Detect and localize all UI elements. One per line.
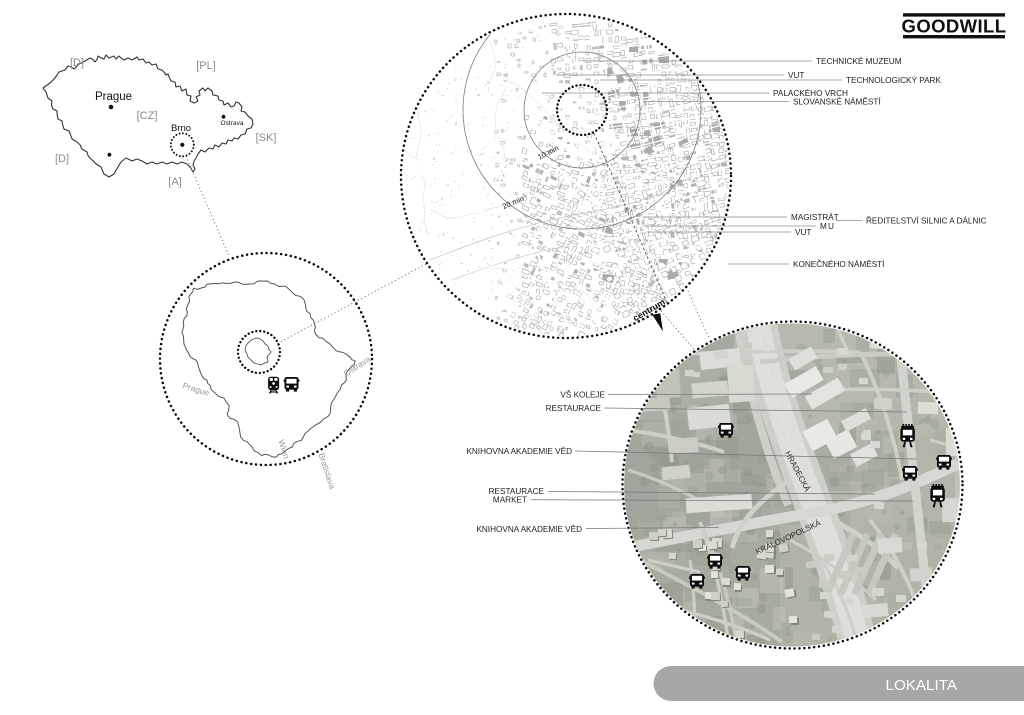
svg-text:[D]: [D] bbox=[70, 57, 84, 69]
svg-text:MAGISTRÁT: MAGISTRÁT bbox=[791, 212, 839, 222]
svg-text:RESTAURACE: RESTAURACE bbox=[546, 404, 602, 413]
svg-text:MU: MU bbox=[820, 222, 835, 231]
svg-text:GOODWILL: GOODWILL bbox=[902, 15, 1007, 36]
svg-text:KNIHOVNA AKADEMIE VĚD: KNIHOVNA AKADEMIE VĚD bbox=[476, 524, 582, 534]
svg-text:TECHNICKÉ MUZEUM: TECHNICKÉ MUZEUM bbox=[816, 56, 902, 66]
svg-text:[A]: [A] bbox=[168, 176, 181, 188]
svg-text:Prague: Prague bbox=[181, 380, 210, 398]
svg-text:TECHNOLOGICKÝ PARK: TECHNOLOGICKÝ PARK bbox=[846, 75, 941, 85]
svg-text:[PL]: [PL] bbox=[196, 60, 216, 72]
svg-text:Wien: Wien bbox=[276, 438, 291, 460]
svg-text:MARKET: MARKET bbox=[493, 496, 527, 505]
svg-text:PALACKÉHO VRCH: PALACKÉHO VRCH bbox=[773, 88, 848, 98]
svg-text:ŘEDITELSTVÍ SILNIC A DÁLNIC: ŘEDITELSTVÍ SILNIC A DÁLNIC bbox=[866, 215, 987, 225]
svg-text:Prague: Prague bbox=[95, 91, 132, 103]
svg-text:SLOVANSKÉ NÁMĚSTÍ: SLOVANSKÉ NÁMĚSTÍ bbox=[793, 96, 881, 106]
svg-text:[SK]: [SK] bbox=[256, 132, 277, 144]
svg-text:[D]: [D] bbox=[55, 153, 69, 165]
svg-text:KNIHOVNA AKADEMIE VĚD: KNIHOVNA AKADEMIE VĚD bbox=[466, 446, 572, 456]
svg-text:Bratislava: Bratislava bbox=[316, 452, 337, 491]
svg-text:Brno: Brno bbox=[171, 123, 191, 134]
svg-text:LOKALITA: LOKALITA bbox=[886, 677, 958, 694]
svg-text:Ostrava: Ostrava bbox=[342, 354, 373, 379]
svg-text:VŠ KOLEJE: VŠ KOLEJE bbox=[560, 389, 605, 399]
svg-text:KONEČNÉHO NÁMĚSTÍ: KONEČNÉHO NÁMĚSTÍ bbox=[793, 259, 885, 269]
svg-text:VUT: VUT bbox=[788, 71, 804, 80]
svg-text:[CZ]: [CZ] bbox=[137, 110, 158, 122]
svg-text:Ostrava: Ostrava bbox=[220, 120, 243, 127]
svg-text:VUT: VUT bbox=[795, 228, 811, 237]
